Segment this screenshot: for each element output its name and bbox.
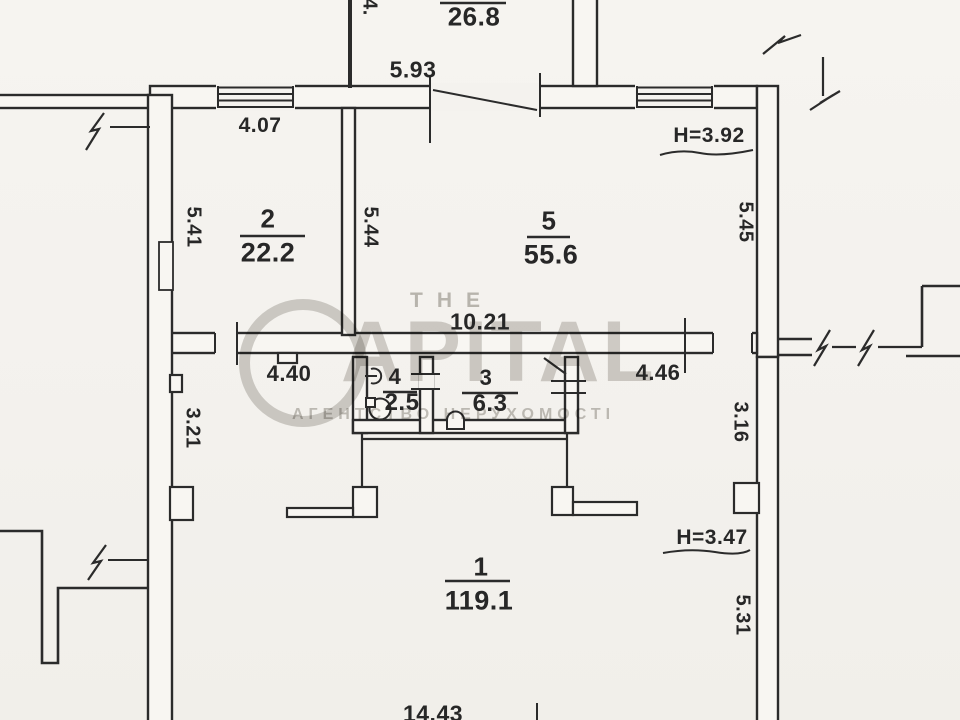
room5-number: 5 [542, 206, 557, 237]
room-top-area: 26.8 [448, 2, 501, 33]
dim-hall-right: 4.46 [636, 360, 681, 386]
floorplan-page: THE APITAL АГЕНТСТВО НЕРУХОМОСТІ 4. 5.93… [0, 0, 960, 720]
dim-room5-right: 5.45 [734, 202, 757, 243]
room4-number: 4 [389, 364, 402, 390]
room1-number: 1 [474, 552, 489, 583]
dim-room2-top: 4.07 [239, 114, 282, 138]
dim-room2-left: 5.41 [182, 207, 205, 248]
room4-area: 2.5 [385, 389, 420, 417]
room2-number: 2 [261, 204, 276, 235]
dim-right-mid: 3.16 [729, 402, 752, 443]
dim-left-lower: 3.21 [181, 408, 204, 449]
room2-area: 22.2 [241, 238, 296, 269]
dim-bottom-width: 14.43 [403, 701, 463, 720]
dim-ceiling-bottom: H=3.47 [676, 526, 747, 550]
dim-right-lower: 5.31 [731, 595, 754, 636]
dim-hall-left: 4.40 [267, 361, 312, 387]
room3-area: 6.3 [473, 390, 508, 418]
room5-area: 55.6 [524, 240, 579, 271]
dim-ceiling-top: H=3.92 [673, 124, 744, 148]
dim-divider-left: 5.44 [359, 207, 382, 248]
labels-layer: 4. 5.93 26.8 4.07 H=3.92 5.41 5.44 5.45 … [0, 0, 960, 720]
room3-number: 3 [480, 365, 493, 391]
room1-area: 119.1 [445, 586, 514, 617]
dim-top-width: 5.93 [390, 57, 437, 84]
dim-top-room-side: 4. [358, 0, 381, 16]
dim-hall-width: 10.21 [450, 309, 510, 336]
